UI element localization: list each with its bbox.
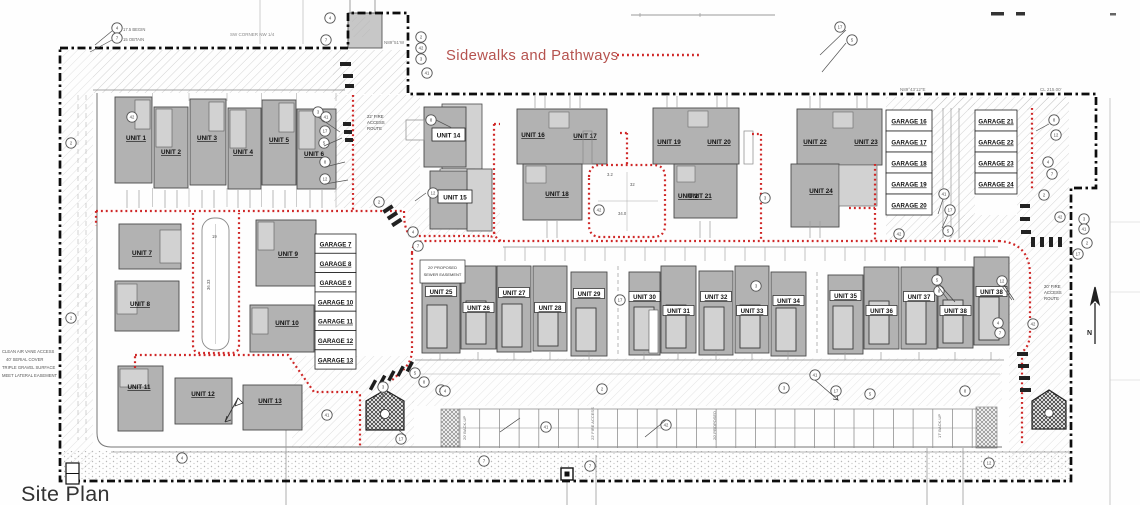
- svg-text:41: 41: [425, 71, 430, 76]
- svg-text:UNIT 20: UNIT 20: [707, 139, 731, 146]
- svg-text:GARAGE 16: GARAGE 16: [891, 119, 927, 126]
- svg-text:GARAGE 20: GARAGE 20: [891, 203, 927, 210]
- svg-text:CLEAN AIR VANE ACCESS: CLEAN AIR VANE ACCESS: [2, 349, 54, 354]
- svg-text:UNIT 33: UNIT 33: [741, 308, 764, 315]
- svg-text:GARAGE 12: GARAGE 12: [318, 338, 354, 345]
- svg-text:GARAGE 11: GARAGE 11: [318, 319, 353, 326]
- svg-text:ACCESS: ACCESS: [367, 120, 385, 125]
- svg-text:UNIT 13: UNIT 13: [258, 398, 282, 405]
- svg-text:42: 42: [130, 115, 135, 120]
- svg-text:UNIT 17: UNIT 17: [573, 133, 597, 140]
- svg-text:GARAGE 13: GARAGE 13: [318, 357, 354, 364]
- svg-text:UNIT 10: UNIT 10: [275, 320, 299, 327]
- svg-text:UNIT 35: UNIT 35: [834, 293, 857, 300]
- svg-text:UNIT 28: UNIT 28: [539, 305, 562, 312]
- svg-text:ROUTE: ROUTE: [367, 126, 382, 131]
- svg-text:GARAGE 7: GARAGE 7: [320, 242, 352, 249]
- svg-text:UNIT 12: UNIT 12: [191, 391, 215, 398]
- svg-text:GARAGE 8: GARAGE 8: [320, 261, 352, 268]
- svg-text:22′ FIRE: 22′ FIRE: [367, 114, 384, 119]
- svg-text:41: 41: [813, 373, 818, 378]
- svg-text:40′ SERIAL COVER: 40′ SERIAL COVER: [6, 357, 43, 362]
- svg-text:N89°51′W: N89°51′W: [384, 40, 405, 45]
- svg-text:19: 19: [212, 234, 217, 239]
- svg-text:41: 41: [544, 425, 549, 430]
- svg-text:UNIT 6: UNIT 6: [304, 151, 324, 158]
- svg-text:UNIT 7: UNIT 7: [132, 250, 152, 257]
- svg-text:42: 42: [419, 46, 424, 51]
- svg-text:UNIT 4: UNIT 4: [233, 149, 253, 156]
- svg-text:UNIT 16: UNIT 16: [521, 132, 545, 139]
- svg-text:UNIT 9: UNIT 9: [278, 251, 298, 258]
- svg-text:UNIT 8: UNIT 8: [130, 301, 150, 308]
- svg-text:UNIT 25: UNIT 25: [430, 289, 453, 296]
- svg-text:12: 12: [1054, 133, 1059, 138]
- svg-text:42: 42: [1031, 322, 1036, 327]
- svg-text:41: 41: [324, 115, 329, 120]
- svg-text:34.0: 34.0: [618, 211, 627, 216]
- svg-text:GARAGE 18: GARAGE 18: [891, 161, 927, 168]
- svg-text:UNIT 38: UNIT 38: [980, 289, 1003, 296]
- svg-text:UNIT 23: UNIT 23: [854, 139, 878, 146]
- svg-text:GARAGE 19: GARAGE 19: [891, 182, 927, 189]
- svg-text:GARAGE 23: GARAGE 23: [978, 161, 1014, 168]
- svg-text:UNIT 2: UNIT 2: [678, 193, 698, 200]
- svg-text:20′ FIRE: 20′ FIRE: [1044, 284, 1061, 289]
- svg-text:GARAGE 17: GARAGE 17: [891, 140, 927, 147]
- svg-text:GARAGE 22: GARAGE 22: [978, 140, 1014, 147]
- svg-text:17: 17: [618, 298, 623, 303]
- svg-text:12: 12: [987, 461, 992, 466]
- svg-text:20′ BACK-UP: 20′ BACK-UP: [462, 416, 467, 440]
- svg-text:12: 12: [431, 191, 436, 196]
- svg-text:17: 17: [1076, 252, 1081, 257]
- svg-text:42: 42: [897, 232, 902, 237]
- svg-text:17.5 BEGIN: 17.5 BEGIN: [123, 27, 145, 32]
- svg-text:12: 12: [1000, 279, 1005, 284]
- svg-text:42: 42: [664, 423, 669, 428]
- svg-text:UNIT 18: UNIT 18: [545, 191, 569, 198]
- svg-text:20′ PROPOSED: 20′ PROPOSED: [428, 265, 457, 270]
- svg-text:36.33: 36.33: [206, 279, 211, 290]
- svg-text:UNIT 2: UNIT 2: [161, 149, 181, 156]
- svg-text:UNIT 15: UNIT 15: [443, 195, 467, 202]
- svg-text:UNIT 29: UNIT 29: [578, 291, 601, 298]
- svg-text:42: 42: [597, 208, 602, 213]
- svg-text:UNIT 24: UNIT 24: [809, 188, 833, 195]
- svg-text:17: 17: [323, 129, 328, 134]
- svg-text:TRIPLE GRAVEL SURFACE: TRIPLE GRAVEL SURFACE: [2, 365, 55, 370]
- svg-text:GARAGE 24: GARAGE 24: [978, 182, 1014, 189]
- svg-text:UNIT 37: UNIT 37: [908, 294, 931, 301]
- svg-text:UNIT 22: UNIT 22: [803, 139, 827, 146]
- svg-text:UNIT 30: UNIT 30: [633, 294, 656, 301]
- svg-text:UNIT 31: UNIT 31: [667, 308, 690, 315]
- svg-text:GARAGE 9: GARAGE 9: [320, 280, 352, 287]
- svg-text:20′ PROPOSED: 20′ PROPOSED: [712, 411, 717, 440]
- svg-text:MEET LATERAL EASEMENT: MEET LATERAL EASEMENT: [2, 373, 58, 378]
- svg-text:GARAGE 21: GARAGE 21: [978, 119, 1014, 126]
- svg-text:3.2: 3.2: [607, 172, 613, 177]
- svg-text:ACCESS: ACCESS: [1044, 290, 1062, 295]
- svg-text:17′ BACK-UP: 17′ BACK-UP: [937, 414, 942, 438]
- svg-text:41: 41: [1082, 227, 1087, 232]
- svg-text:UNIT 3: UNIT 3: [197, 135, 217, 142]
- svg-text:41: 41: [325, 413, 330, 418]
- svg-text:UNIT 38: UNIT 38: [944, 308, 967, 315]
- svg-text:UNIT 26: UNIT 26: [467, 305, 490, 312]
- svg-text:SEWER EASEMENT: SEWER EASEMENT: [424, 272, 462, 277]
- svg-text:UNIT 32: UNIT 32: [705, 294, 728, 301]
- svg-text:UNIT 5: UNIT 5: [269, 137, 289, 144]
- svg-text:22′ FIRE ACCESS: 22′ FIRE ACCESS: [590, 407, 595, 440]
- svg-text:17: 17: [948, 208, 953, 213]
- svg-text:UNIT 1: UNIT 1: [126, 135, 146, 142]
- svg-text:N89°43′12″E: N89°43′12″E: [900, 87, 926, 92]
- svg-text:N: N: [1087, 330, 1092, 337]
- svg-text:CL 215.00′: CL 215.00′: [1040, 87, 1062, 92]
- svg-text:17: 17: [838, 25, 843, 30]
- svg-text:UNIT 27: UNIT 27: [503, 290, 526, 297]
- svg-text:41: 41: [942, 192, 947, 197]
- svg-text:Sidewalks and Pathways: Sidewalks and Pathways: [446, 48, 618, 64]
- svg-text:SW CORNER NW 1/4: SW CORNER NW 1/4: [230, 32, 275, 37]
- svg-text:UNIT 34: UNIT 34: [777, 298, 800, 305]
- svg-text:17: 17: [399, 437, 404, 442]
- svg-text:UNIT 19: UNIT 19: [657, 139, 681, 146]
- svg-text:GARAGE 10: GARAGE 10: [318, 299, 354, 306]
- svg-text:UNIT 11: UNIT 11: [127, 384, 151, 391]
- svg-text:UNIT 14: UNIT 14: [437, 133, 461, 140]
- svg-text:42: 42: [1058, 215, 1063, 220]
- svg-text:Site Plan: Site Plan: [21, 482, 110, 505]
- svg-text:15 OBTAIN: 15 OBTAIN: [123, 37, 144, 42]
- svg-text:32: 32: [630, 182, 635, 187]
- svg-text:12: 12: [323, 177, 328, 182]
- svg-text:UNIT 36: UNIT 36: [870, 308, 893, 315]
- svg-text:ROUTE: ROUTE: [1044, 296, 1059, 301]
- svg-text:17: 17: [834, 389, 839, 394]
